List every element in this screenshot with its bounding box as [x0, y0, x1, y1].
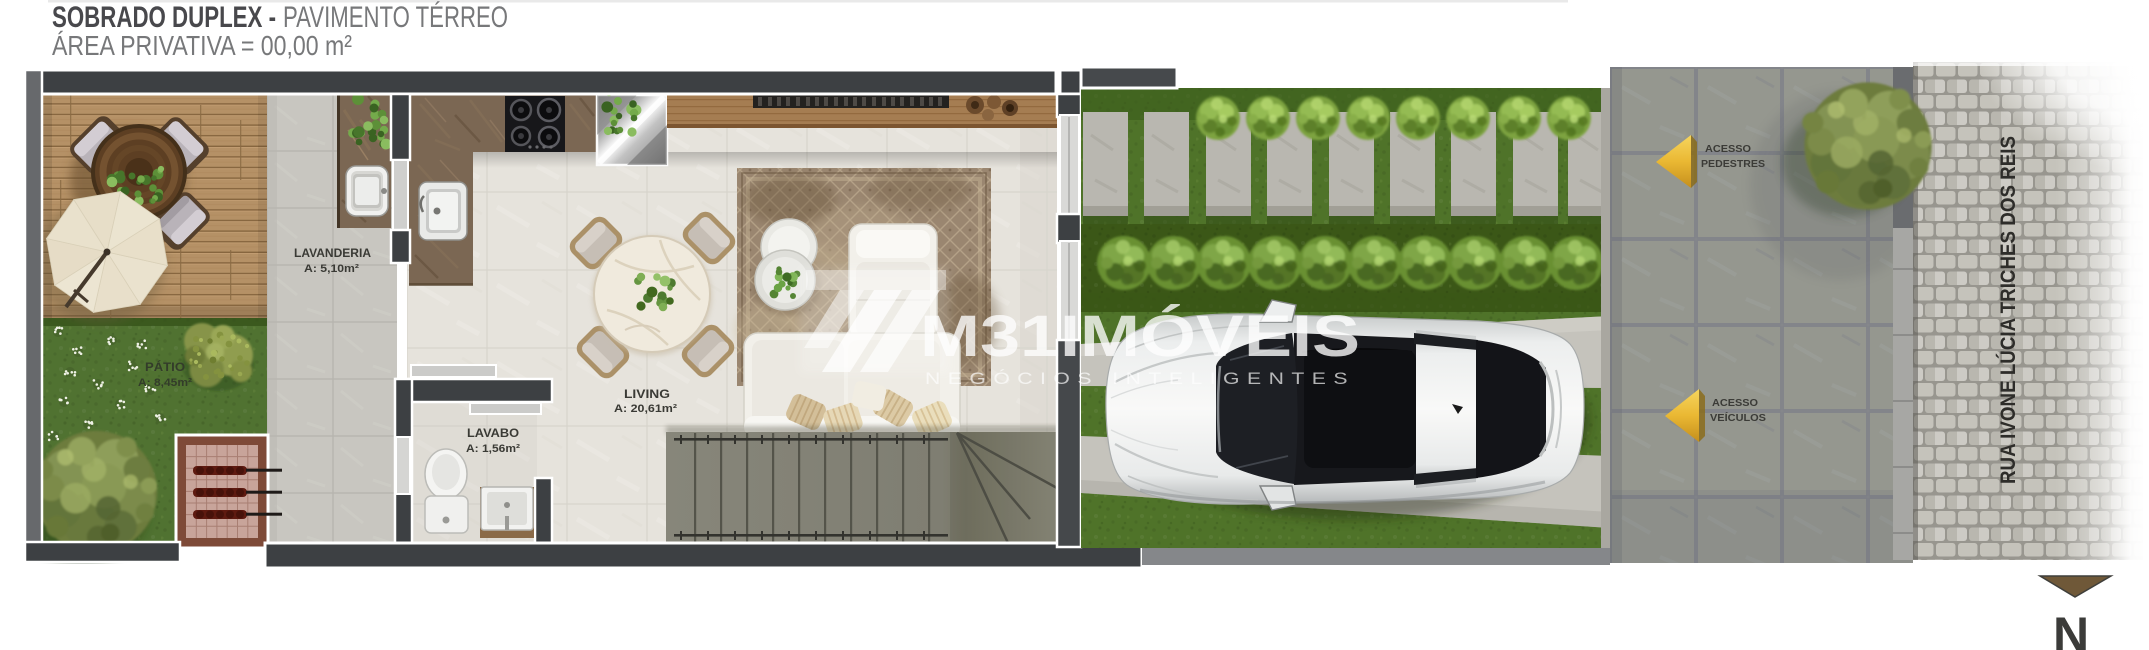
svg-text:LIVING: LIVING — [624, 387, 670, 401]
svg-text:ACESSO: ACESSO — [1705, 144, 1751, 155]
svg-text:VEÍCULOS: VEÍCULOS — [1710, 411, 1766, 424]
svg-text:LAVABO: LAVABO — [467, 426, 519, 440]
svg-text:ACESSO: ACESSO — [1712, 398, 1758, 409]
svg-text:A: 20,61m²: A: 20,61m² — [614, 403, 677, 415]
svg-text:A: 1,56m²: A: 1,56m² — [466, 443, 520, 455]
svg-text:PÁTIO: PÁTIO — [145, 359, 185, 374]
svg-text:N: N — [2053, 607, 2089, 650]
svg-text:A: 8,45m²: A: 8,45m² — [138, 377, 192, 389]
svg-text:NEGÓCIOS INTELIGENTES: NEGÓCIOS INTELIGENTES — [925, 369, 1355, 388]
svg-text:ÁREA PRIVATIVA = 00,00 m²: ÁREA PRIVATIVA = 00,00 m² — [52, 30, 352, 61]
svg-text:M31IMÓVEIS: M31IMÓVEIS — [920, 304, 1360, 369]
svg-text:A: 5,10m²: A: 5,10m² — [304, 263, 359, 275]
svg-text:RUA IVONE LÚCIA TRICHES DOS RE: RUA IVONE LÚCIA TRICHES DOS REIS — [1996, 136, 2020, 484]
svg-text:PEDESTRES: PEDESTRES — [1701, 159, 1765, 170]
svg-text:LAVANDERIA: LAVANDERIA — [294, 246, 371, 260]
